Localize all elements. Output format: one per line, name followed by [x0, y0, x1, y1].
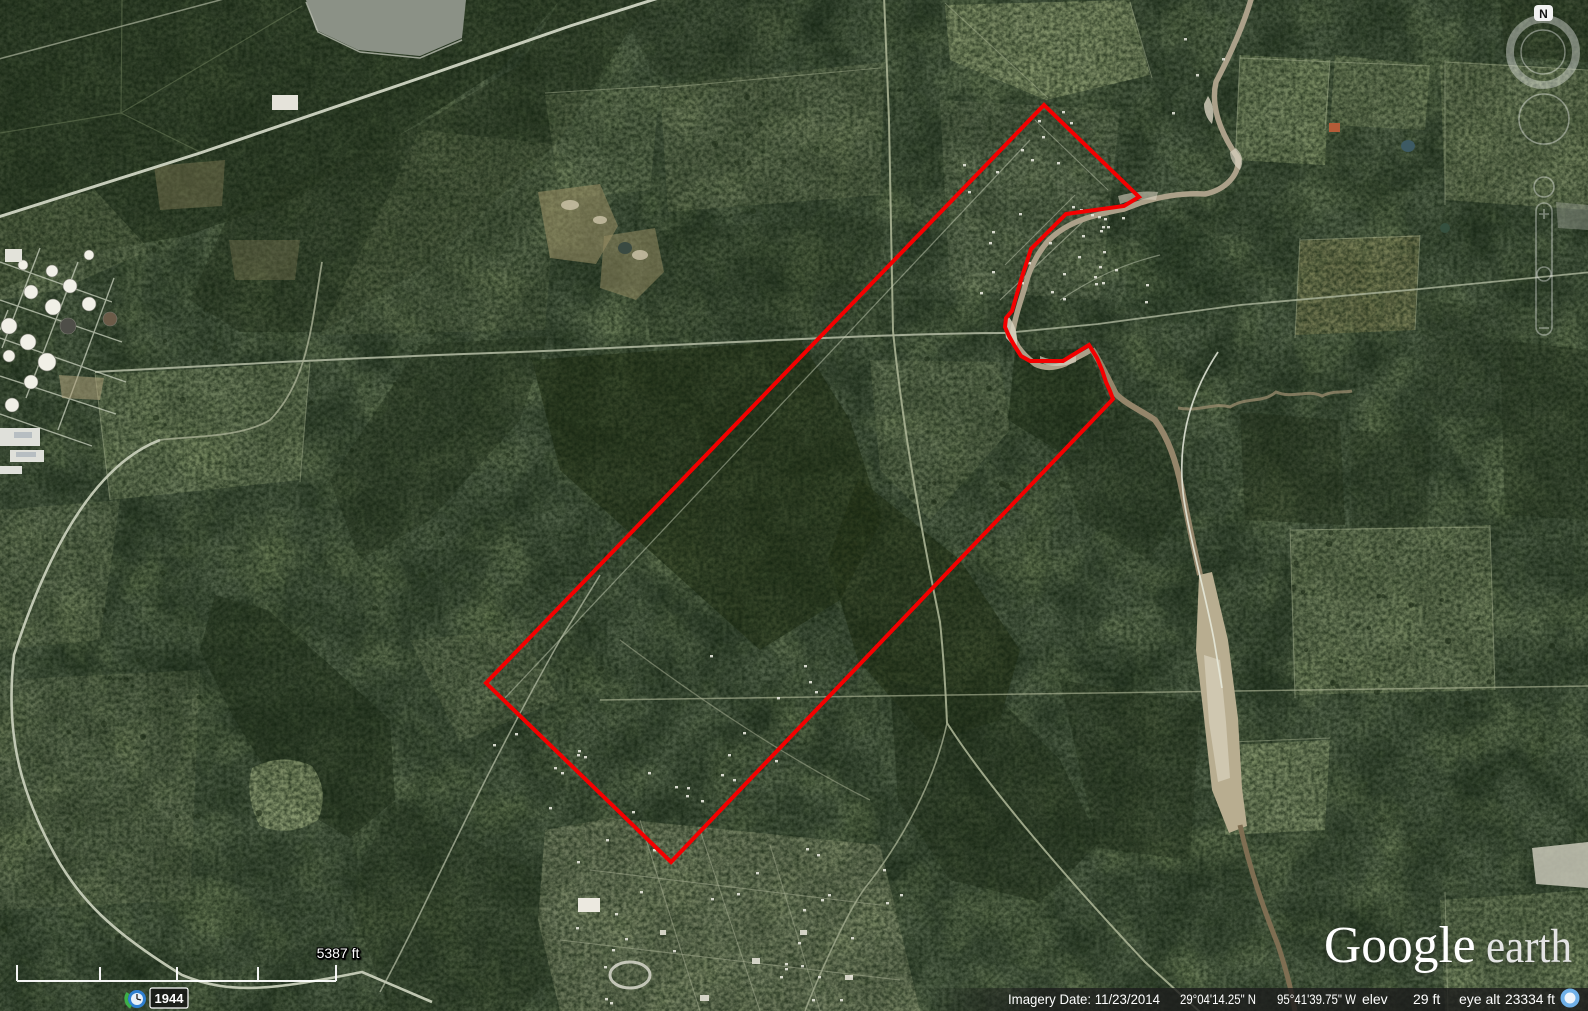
svg-text:N: N: [1539, 7, 1548, 21]
svg-text:5387 ft: 5387 ft: [317, 945, 360, 961]
svg-text:Google: Google: [1324, 917, 1476, 974]
svg-text:95°41'39.75" W: 95°41'39.75" W: [1277, 991, 1357, 1007]
svg-text:1944: 1944: [155, 991, 185, 1006]
svg-text:earth: earth: [1486, 920, 1572, 973]
svg-text:29°04'14.25" N: 29°04'14.25" N: [1180, 991, 1256, 1007]
svg-text:29 ft: 29 ft: [1413, 991, 1440, 1007]
svg-text:eye alt: eye alt: [1459, 991, 1500, 1007]
svg-text:23334 ft: 23334 ft: [1505, 991, 1555, 1007]
svg-text:elev: elev: [1362, 991, 1388, 1007]
svg-text:Imagery Date: 11/23/2014: Imagery Date: 11/23/2014: [1008, 991, 1160, 1007]
